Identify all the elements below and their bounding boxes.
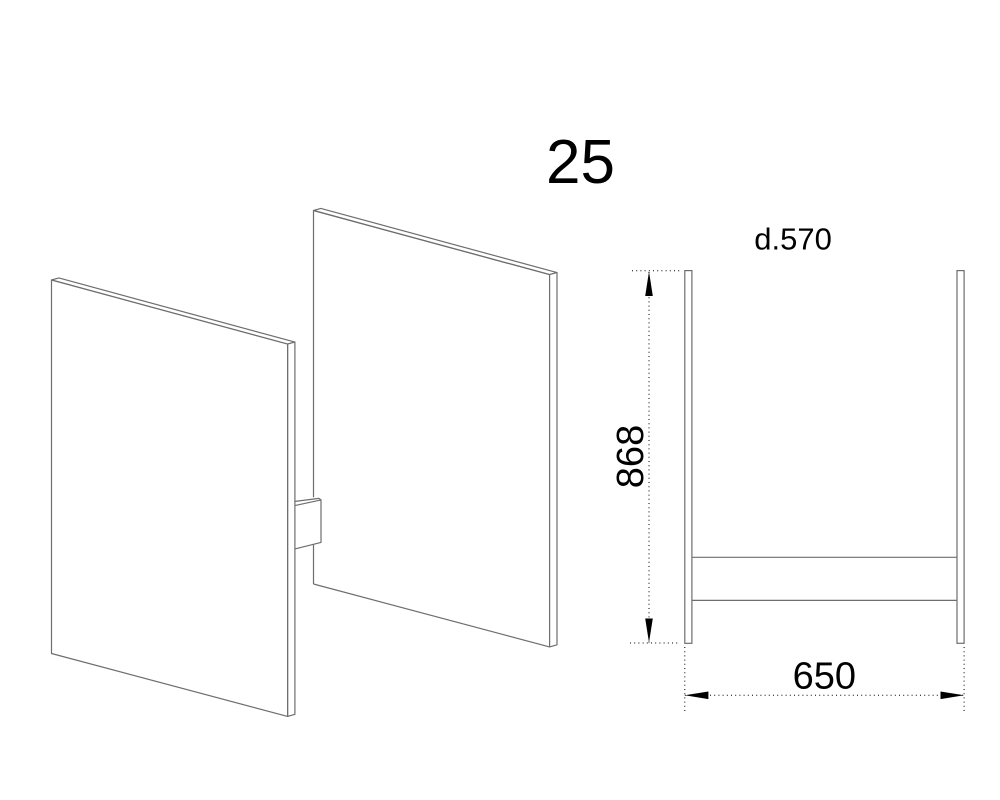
svg-text:25: 25 — [546, 128, 615, 197]
svg-text:868: 868 — [610, 425, 652, 488]
svg-text:650: 650 — [793, 655, 856, 697]
svg-text:d.570: d.570 — [754, 222, 832, 257]
